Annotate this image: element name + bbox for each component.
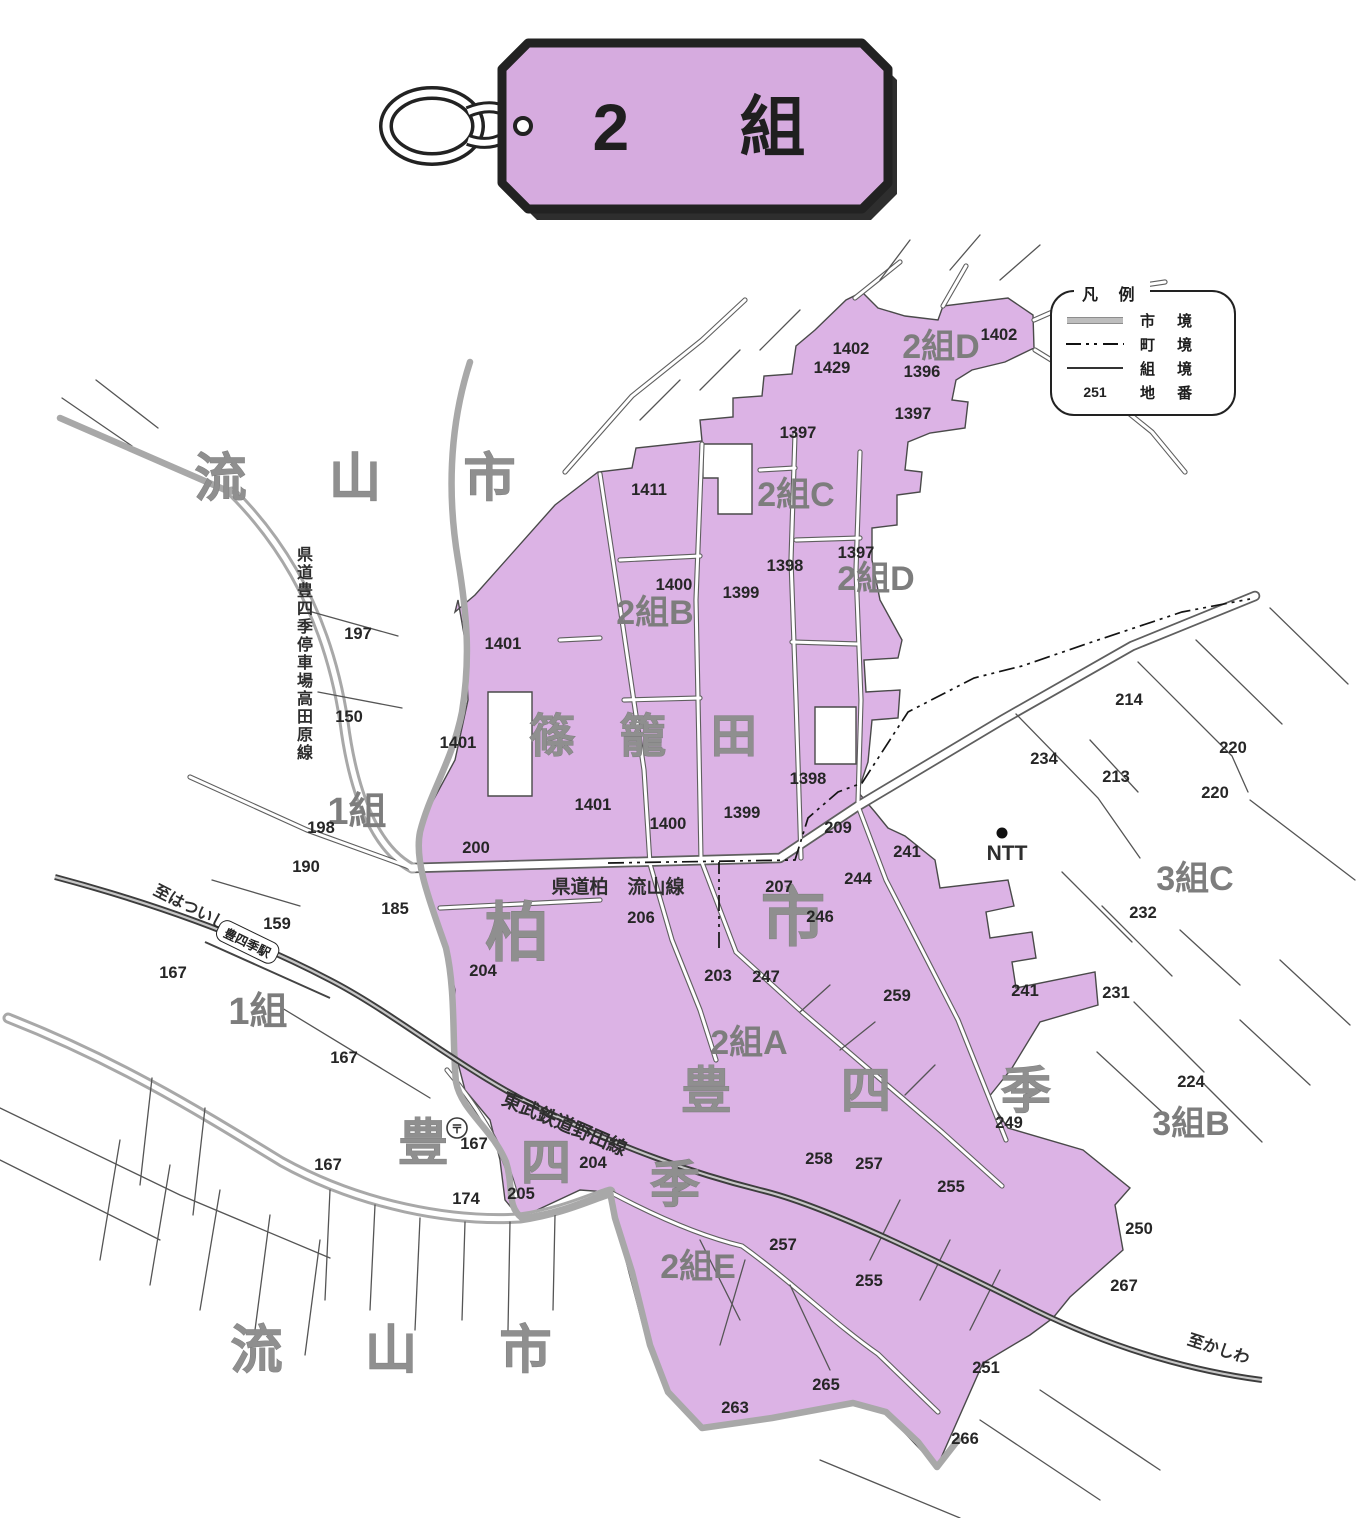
lot-number-label: 241 <box>1011 982 1039 1000</box>
group-3c-label: 3組C <box>1156 860 1233 898</box>
legend-title: 凡 例 <box>1074 281 1150 305</box>
lot-number-label: 224 <box>1177 1073 1205 1091</box>
lot-number-label: 258 <box>805 1150 833 1168</box>
lot-number-label: 150 <box>335 708 363 726</box>
ntt-label: NTT <box>987 842 1028 865</box>
lot-number-label: 203 <box>704 967 732 985</box>
road-name-toyoshiki-takadahara: 県道豊四季停車場高田原線 <box>296 546 314 762</box>
lot-number-label: 220 <box>1219 739 1247 757</box>
group-2c-label: 2組C <box>757 476 834 514</box>
city-name-kashiwa-1: 柏 <box>485 897 549 969</box>
district-toyoshiki-char1: 豊 <box>398 1115 448 1171</box>
lot-number-label: 1397 <box>838 544 875 562</box>
city-name-nagareyama-bottom: 流 山 市 <box>231 1322 586 1380</box>
lot-number-label: 1399 <box>724 804 761 822</box>
legend-label-kumi: 組 境 <box>1140 358 1201 379</box>
district-shinoda: 篠 籠 田 <box>529 710 773 762</box>
lot-number-label: 263 <box>721 1399 749 1417</box>
city-name-nagareyama-top: 流 山 市 <box>195 450 550 508</box>
lot-number-label: 246 <box>806 908 834 926</box>
lot-number-label: 251 <box>972 1359 1000 1377</box>
lot-number-label: 232 <box>1129 904 1157 922</box>
lot-number-label: 1396 <box>904 363 941 381</box>
lot-number-label: 250 <box>1125 1220 1153 1238</box>
lot-number-label: 255 <box>937 1178 965 1196</box>
lot-number-label: 209 <box>824 819 852 837</box>
lot-number-label: 206 <box>627 909 655 927</box>
legend-row-town: 町 境 <box>1064 332 1224 356</box>
lot-number-label: 204 <box>579 1154 607 1172</box>
lot-number-label: 185 <box>381 900 409 918</box>
town-boundary-sample <box>1066 343 1124 346</box>
kumi-boundary-sample <box>1067 367 1123 369</box>
group-3b-label: 3組B <box>1152 1105 1229 1143</box>
district-toyoshiki: 豊 四 季 <box>681 1063 1099 1119</box>
lot-number-label: 1398 <box>767 557 804 575</box>
lot-number-label: 213 <box>1102 768 1130 786</box>
lot-number-label: 190 <box>292 858 320 876</box>
lot-number-label: 1398 <box>790 770 827 788</box>
legend-label-num: 地 番 <box>1140 382 1201 403</box>
lot-number-sample: 251 <box>1083 384 1106 400</box>
lot-number-label: 167 <box>159 964 187 982</box>
lot-number-label: 167 <box>330 1049 358 1067</box>
group-2e-label: 2組E <box>660 1248 736 1286</box>
lot-number-label: 265 <box>812 1376 840 1394</box>
lot-number-label: 167 <box>314 1156 342 1174</box>
legend-label-city: 市 境 <box>1140 310 1201 331</box>
lot-number-label: 1400 <box>650 815 687 833</box>
lot-number-label: 205 <box>507 1185 535 1203</box>
lot-number-label: 1400 <box>656 576 693 594</box>
tag-hole <box>515 118 531 134</box>
group-1-label-top: 1組 <box>327 791 386 833</box>
legend-row-kumi: 組 境 <box>1064 356 1224 380</box>
group-tag: 2 組 <box>360 26 940 234</box>
lot-number-label: 234 <box>1030 750 1058 768</box>
tag-title: 2 組 <box>592 90 851 164</box>
lot-number-label: 1402 <box>981 326 1018 344</box>
lot-number-label: 257 <box>855 1155 883 1173</box>
ntt-dot <box>997 828 1008 839</box>
lot-number-label: 207 <box>765 878 793 896</box>
lot-number-label: 1401 <box>575 796 612 814</box>
lot-number-label: 204 <box>469 962 497 980</box>
lot-number-label: 159 <box>263 915 291 933</box>
lot-number-label: 249 <box>995 1114 1023 1132</box>
group-2d-label-mid: 2組D <box>837 560 914 598</box>
lot-number-label: 1399 <box>723 584 760 602</box>
lot-number-label: 1411 <box>631 481 667 499</box>
group-1-label-bottom: 1組 <box>228 991 287 1033</box>
lot-number-label: 1401 <box>485 635 522 653</box>
lot-number-label: 257 <box>769 1236 797 1254</box>
lot-number-label: 197 <box>344 625 372 643</box>
district-toyoshiki-char3: 季 <box>650 1157 700 1213</box>
road-name-kashiwa-nagareyama: 県道柏 流山線 <box>551 875 684 898</box>
lot-number-label: 1402 <box>833 340 870 358</box>
lot-number-label: 174 <box>452 1190 480 1208</box>
lot-number-label: 1397 <box>780 424 817 442</box>
lot-number-label: 259 <box>883 987 911 1005</box>
lot-number-label: 214 <box>1115 691 1143 709</box>
lot-number-label: 241 <box>893 843 921 861</box>
lot-number-label: 1401 <box>440 734 477 752</box>
group-2a-label: 2組A <box>710 1024 787 1062</box>
lot-number-label: 167 <box>460 1135 488 1153</box>
legend-label-town: 町 境 <box>1140 334 1201 355</box>
to-kashiwa: 至かしわ <box>1185 1331 1251 1368</box>
lot-number-label: 1429 <box>814 359 851 377</box>
lot-number-label: 266 <box>951 1430 979 1448</box>
lot-number-label: 220 <box>1201 784 1229 802</box>
lot-number-label: 200 <box>462 839 490 857</box>
group-2b-label: 2組B <box>616 594 693 632</box>
lot-number-label: 255 <box>855 1272 883 1290</box>
lot-number-label: 267 <box>1110 1277 1138 1295</box>
lot-number-label: 244 <box>844 870 872 888</box>
legend-row-num: 251 地 番 <box>1064 380 1224 404</box>
group-tag-graphic: 2 組 <box>360 26 940 234</box>
city-boundary-sample <box>1067 317 1123 324</box>
lot-number-label: 231 <box>1102 984 1130 1002</box>
map-page: 流 山 市流 山 市柏市篠 籠 田豊 四 季豊四季1組1組2組B2組C2組D2組… <box>0 0 1369 1518</box>
lot-number-label: 198 <box>307 819 335 837</box>
district-toyoshiki-char2: 四 <box>521 1135 571 1191</box>
lot-number-label: 1397 <box>895 405 932 423</box>
legend: 凡 例 市 境 町 境 組 境 251 地 番 <box>1050 290 1236 416</box>
legend-row-city: 市 境 <box>1064 308 1224 332</box>
group-2d-label-top: 2組D <box>902 328 979 366</box>
post-office-symbol: 〒 <box>451 1122 463 1136</box>
lot-number-label: 247 <box>752 968 780 986</box>
